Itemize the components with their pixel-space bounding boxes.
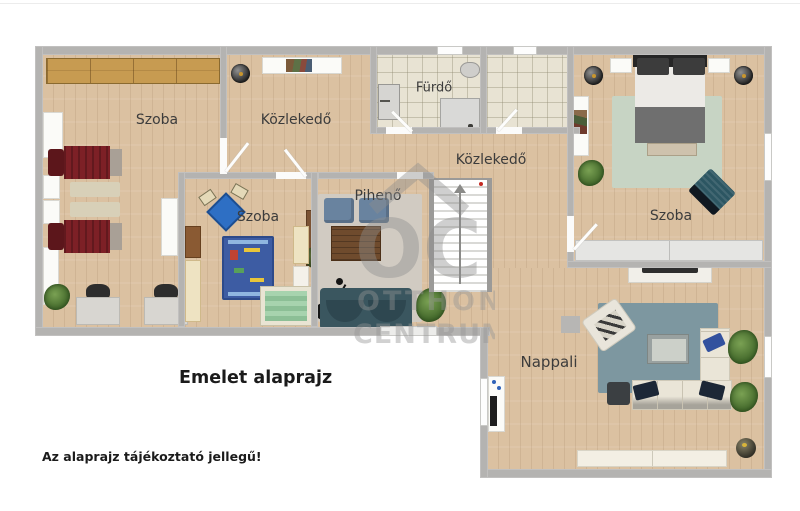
staircase-arrow-head <box>454 184 466 193</box>
bed-foot <box>110 149 122 176</box>
window-bedroom-right <box>764 133 772 181</box>
rug-pattern <box>228 240 268 244</box>
window-lounge-bottom <box>380 326 437 336</box>
wardrobe-mid-wall <box>161 198 178 256</box>
wall-left <box>35 46 43 336</box>
bed-pillow <box>637 58 669 75</box>
bed-blanket <box>635 107 705 143</box>
gray-cabinet <box>561 316 580 333</box>
room-label-kozlekedo-upper: Közlekedő <box>261 112 332 128</box>
wall-midroom-left <box>178 172 185 327</box>
wall-bedroom-bottom <box>567 261 772 268</box>
nightstand-right-2 <box>708 58 730 73</box>
window-bathroom <box>437 46 463 55</box>
bedside-rug-2 <box>70 202 120 217</box>
rug-pattern <box>230 250 238 260</box>
wall-midroom-right <box>311 172 318 327</box>
hall-lamp-icon <box>231 64 250 83</box>
plan-title: Emelet alaprajz <box>179 368 332 388</box>
wardrobe-strip <box>46 58 220 84</box>
wall-bottom-living <box>487 469 772 478</box>
hall-picture <box>286 59 312 72</box>
toilet <box>460 62 480 78</box>
coffee-table <box>331 226 381 261</box>
bedroom-lamp-left-icon <box>584 66 603 85</box>
floor-tiled-room <box>487 55 567 133</box>
bed-foot <box>110 223 122 250</box>
wall-bath-left <box>370 46 377 134</box>
living-sideboard <box>577 450 727 467</box>
living-desk-device <box>490 396 497 426</box>
staircase-marker-dot <box>479 182 483 186</box>
kids-bed <box>260 286 312 326</box>
bed-pillow <box>673 58 705 75</box>
room-label-kozlekedo-main: Közlekedő <box>456 152 527 168</box>
wardrobe-cream-left <box>185 260 201 322</box>
desk-1 <box>76 297 120 325</box>
bed-cover <box>64 220 110 253</box>
room-label-piheno: Pihenő <box>355 188 402 204</box>
table-top <box>652 339 686 361</box>
room-label-szoba-right: Szoba <box>650 208 692 224</box>
top-divider-line <box>0 3 800 4</box>
sofa-cushion <box>326 300 364 322</box>
room-label-szoba-left: Szoba <box>136 112 178 128</box>
rug-pattern <box>250 278 264 282</box>
window-living-left <box>480 378 488 426</box>
decor-ball <box>736 438 756 458</box>
lounge-pouf-1 <box>324 198 354 223</box>
bedroom-lamp-right-icon <box>734 66 753 85</box>
nightstand-right-1 <box>610 58 632 73</box>
desk-dot-1 <box>492 380 496 384</box>
plan-disclaimer: Az alaprajz tájékoztató jellegű! <box>42 449 262 464</box>
rug-pattern <box>234 268 244 273</box>
sideboard-divider <box>652 451 653 466</box>
wall-top <box>35 46 772 55</box>
bed-pillow <box>48 223 64 250</box>
double-bed <box>633 54 707 156</box>
window-living-right <box>764 336 772 378</box>
decor-ball-glint <box>742 443 747 447</box>
room-label-szoba-middle: Szoba <box>237 209 279 225</box>
desk-dot-2 <box>497 386 501 390</box>
staircase-arrow-line <box>459 192 461 284</box>
single-bed-1 <box>48 146 122 179</box>
staircase-rail-left <box>429 178 434 292</box>
lounge-sofa <box>320 288 412 330</box>
bed-bench <box>647 143 697 156</box>
floor-lamp-icon <box>336 278 343 285</box>
shelf-brown <box>185 226 201 258</box>
opening-lounge <box>397 172 423 179</box>
floorplan-canvas: Szoba Közlekedő Fürdő Közlekedő Pihenő S… <box>0 0 800 511</box>
bed-pillow <box>48 149 64 176</box>
window-tiled-room <box>513 46 537 55</box>
room-label-furdo: Fürdő <box>416 81 452 96</box>
bed-cover <box>64 146 110 179</box>
wall-hall-divider <box>220 46 227 140</box>
staircase-rail-right <box>487 178 492 292</box>
wardrobe-divider <box>669 241 670 260</box>
living-coffee-table <box>647 334 689 364</box>
room-label-nappali: Nappali <box>521 353 578 371</box>
dark-pouf <box>607 382 630 405</box>
kids-bed-mattress <box>265 291 307 321</box>
single-bed-2 <box>48 220 122 253</box>
armchair-cushion <box>594 310 627 341</box>
bathroom-sink-tap <box>380 100 390 102</box>
sofa-cushion <box>368 300 406 322</box>
bedside-rug-1 <box>70 182 120 197</box>
rug-pattern <box>244 248 260 252</box>
wardrobe-bottom <box>575 240 763 261</box>
wall-bath-divider <box>480 46 487 134</box>
wardrobe-cream-right <box>293 226 309 264</box>
